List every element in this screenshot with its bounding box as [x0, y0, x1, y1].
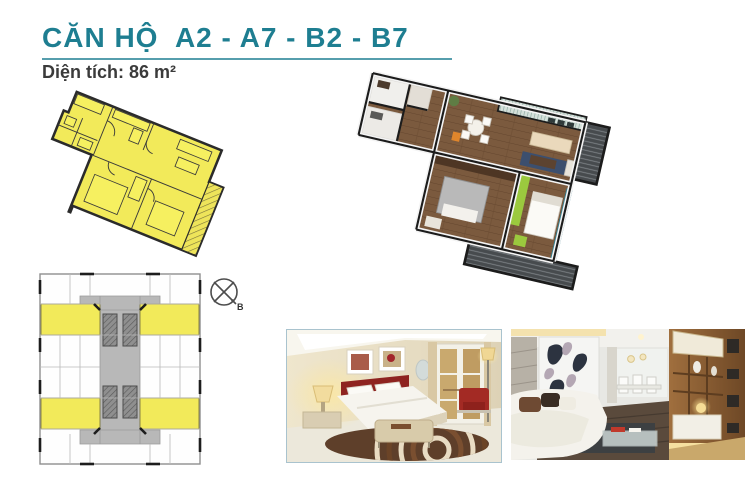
pillow-dark [541, 393, 560, 407]
unit-a2 [41, 304, 100, 335]
living-room-photo [511, 329, 745, 460]
pillow-cream [559, 397, 576, 410]
vase-2 [711, 366, 717, 376]
compass-icon: B [211, 279, 244, 312]
floor-plan-3d [334, 66, 652, 320]
dining-set [617, 375, 661, 393]
brochure-page: CĂN HỘ A2 - A7 - B2 - B7 Diện tích: 86 m… [0, 0, 745, 492]
shelf-lamp [696, 403, 706, 413]
pendant-lamp [628, 356, 635, 363]
unit-footprint [46, 90, 236, 262]
pendant-lamp-2 [640, 354, 646, 360]
isometric-unit [336, 68, 611, 289]
pillow-brown [519, 397, 541, 412]
vase [693, 361, 701, 373]
title-underline [42, 58, 452, 60]
page-title: CĂN HỘ A2 - A7 - B2 - B7 [42, 22, 522, 54]
unit-b2 [41, 398, 100, 429]
mirror [416, 360, 430, 380]
unit-a7 [140, 304, 199, 335]
cove-light [511, 329, 606, 336]
sheer-curtain [607, 347, 617, 403]
red-books [611, 427, 625, 432]
nightstand [303, 412, 341, 428]
area-subtitle: Diện tích: 86 m² [42, 62, 176, 83]
bedroom-photo [286, 329, 502, 463]
cabinet-doors [673, 415, 721, 439]
compass-north-label: B [237, 302, 244, 312]
red-armchair [457, 388, 491, 413]
rotated-unit-plan [46, 90, 236, 262]
unit-b7 [140, 398, 199, 429]
downlight [638, 334, 644, 340]
shelving-unit [669, 329, 745, 460]
floor-plan-2d [46, 84, 274, 268]
site-plan: B [34, 268, 250, 474]
